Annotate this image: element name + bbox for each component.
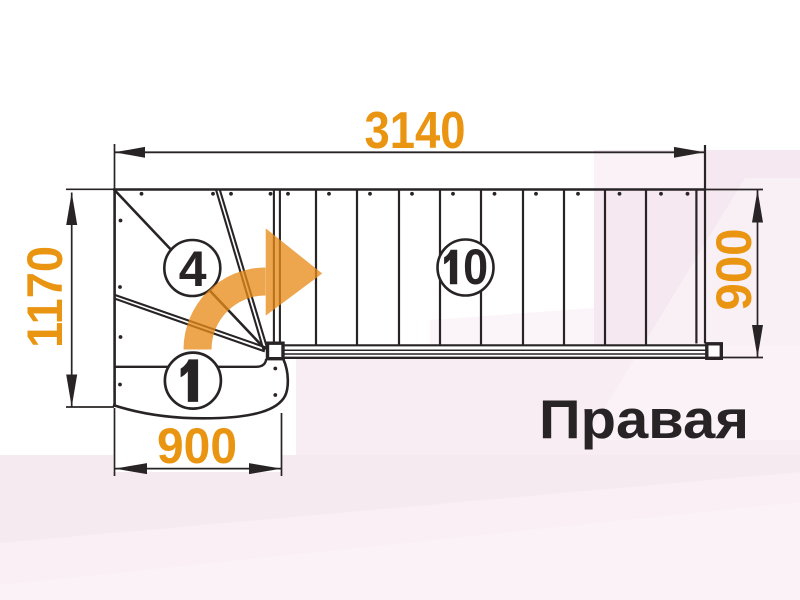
svg-text:900: 900 [157,418,237,474]
svg-text:3140: 3140 [365,102,466,160]
svg-text:900: 900 [706,229,762,311]
svg-text:Правая: Правая [539,388,749,450]
svg-text:4: 4 [179,241,207,297]
svg-text:0: 0 [463,239,488,295]
svg-text:1170: 1170 [17,246,73,348]
